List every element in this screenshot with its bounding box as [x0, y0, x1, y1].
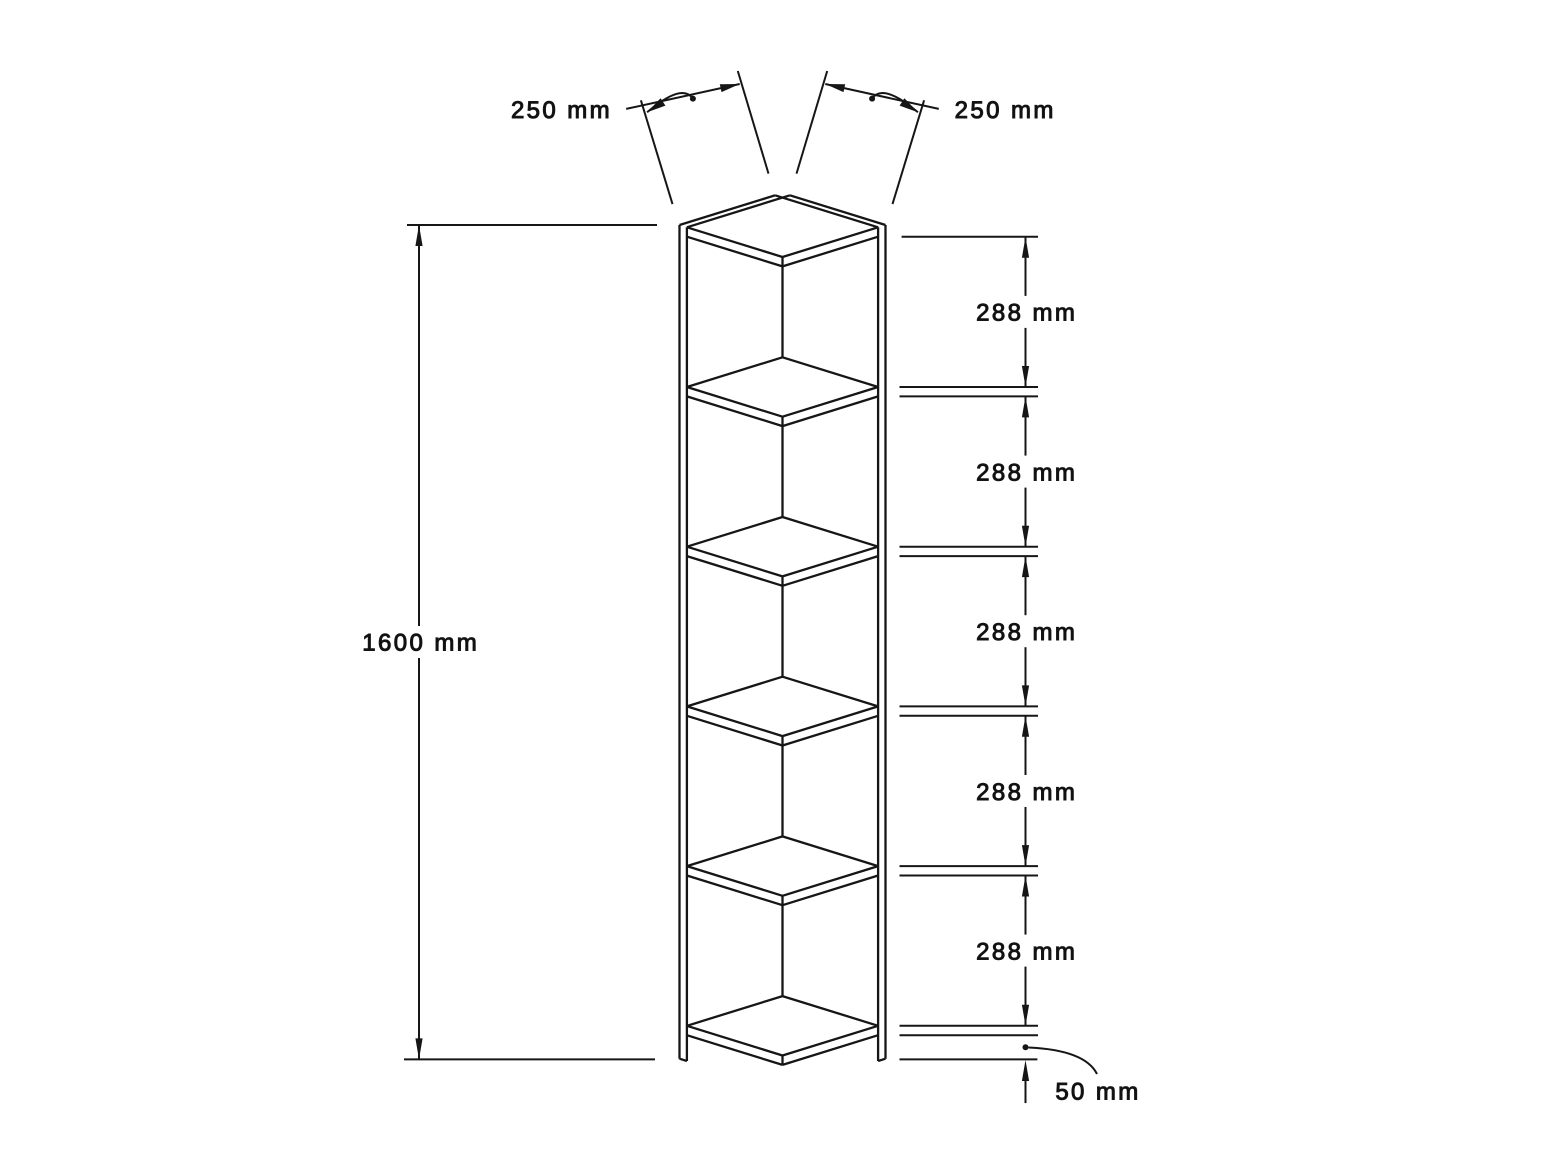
- svg-text:288 mm: 288 mm: [976, 300, 1077, 327]
- svg-text:288 mm: 288 mm: [976, 619, 1077, 646]
- svg-text:288 mm: 288 mm: [976, 779, 1077, 806]
- svg-text:288 mm: 288 mm: [976, 459, 1077, 486]
- svg-text:250 mm: 250 mm: [955, 97, 1056, 124]
- svg-text:1600 mm: 1600 mm: [362, 630, 479, 657]
- svg-text:250 mm: 250 mm: [511, 97, 612, 124]
- svg-text:50 mm: 50 mm: [1055, 1079, 1140, 1106]
- svg-text:288 mm: 288 mm: [976, 938, 1077, 965]
